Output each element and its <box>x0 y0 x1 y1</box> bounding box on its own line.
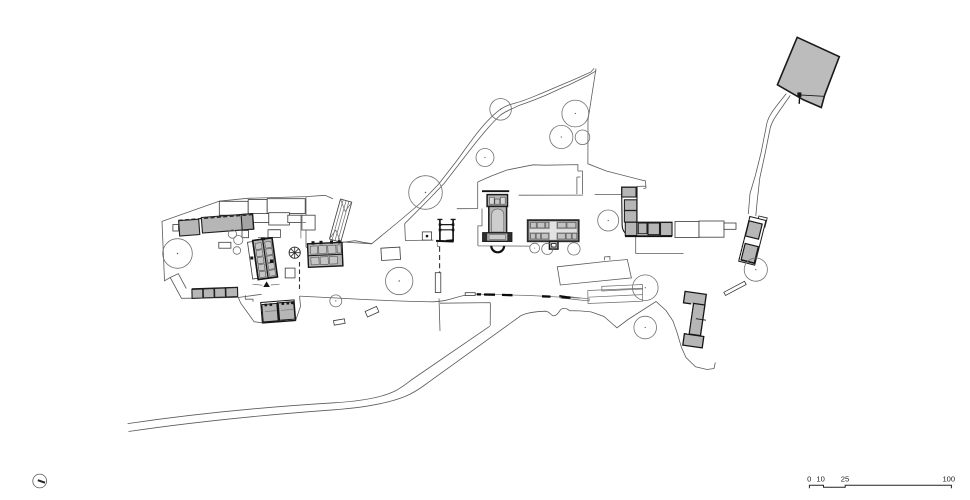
svg-text:10: 10 <box>816 474 824 483</box>
svg-text:0: 0 <box>807 474 811 483</box>
svg-text:25: 25 <box>841 474 849 483</box>
svg-text:100: 100 <box>942 474 955 483</box>
